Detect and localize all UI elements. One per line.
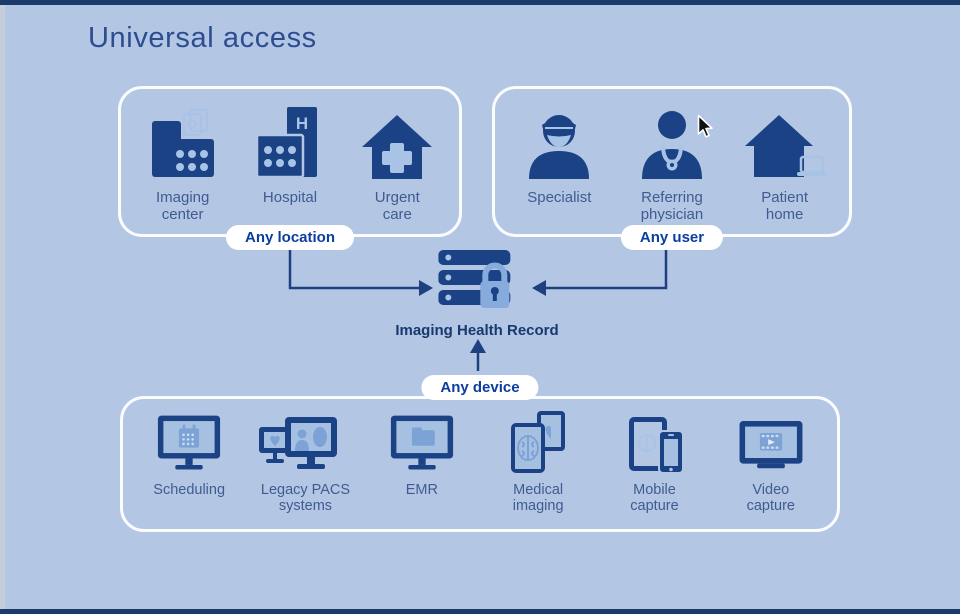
item-video-capture: Video capture [713, 409, 829, 514]
item-urgent-care: Urgent care [344, 99, 451, 224]
slide: Universal access Imaging center [0, 0, 960, 614]
imaging-health-record-label: Imaging Health Record [395, 322, 558, 339]
imaging-health-record: Imaging Health Record [395, 250, 558, 339]
any-user-group: Specialist Referring physician [492, 86, 852, 237]
item-label: Imaging center [156, 190, 209, 224]
mobile-capture-icon [621, 409, 687, 475]
item-legacy-pacs: Legacy PACS systems [247, 409, 363, 514]
top-accent-bar [0, 0, 960, 5]
medical-imaging-icon [503, 409, 573, 475]
item-hospital: H Hospital [236, 99, 343, 207]
item-label: EMR [406, 482, 438, 498]
item-medical-imaging: Medical imaging [480, 409, 596, 514]
emr-icon [385, 409, 459, 475]
scheduling-icon [152, 409, 226, 475]
mouse-cursor-icon [697, 114, 714, 144]
item-label: Specialist [527, 190, 591, 207]
urgent-care-icon [360, 99, 434, 183]
item-mobile-capture: Mobile capture [596, 409, 712, 514]
item-specialist: Specialist [505, 99, 613, 207]
legacy-pacs-icon [257, 409, 353, 475]
bottom-accent-bar [0, 609, 960, 614]
item-label: Referring physician [641, 190, 704, 224]
page-title: Universal access [88, 22, 317, 55]
item-label: Hospital [263, 190, 317, 207]
patient-home-icon [743, 99, 827, 183]
any-device-group: Any device [120, 396, 840, 532]
imaging-center-icon [142, 99, 224, 183]
item-label: Urgent care [375, 190, 420, 224]
item-patient-home: Patient home [731, 99, 839, 224]
specialist-icon [520, 99, 598, 183]
item-label: Video capture [747, 482, 795, 514]
item-label: Patient home [761, 190, 808, 224]
item-label: Scheduling [153, 482, 225, 498]
video-capture-icon [734, 409, 808, 475]
item-scheduling: Scheduling [131, 409, 247, 498]
secure-server-icon [438, 250, 516, 319]
any-location-group: Imaging center H Hospital [118, 86, 462, 237]
left-edge-strip [0, 0, 5, 614]
svg-text:H: H [296, 114, 308, 133]
any-device-pill: Any device [421, 375, 538, 400]
hospital-icon: H [247, 99, 333, 183]
item-label: Mobile capture [630, 482, 678, 514]
any-user-pill: Any user [621, 225, 723, 250]
any-location-pill: Any location [226, 225, 354, 250]
item-emr: EMR [364, 409, 480, 498]
item-label: Legacy PACS systems [261, 482, 350, 514]
item-imaging-center: Imaging center [129, 99, 236, 224]
item-label: Medical imaging [513, 482, 564, 514]
